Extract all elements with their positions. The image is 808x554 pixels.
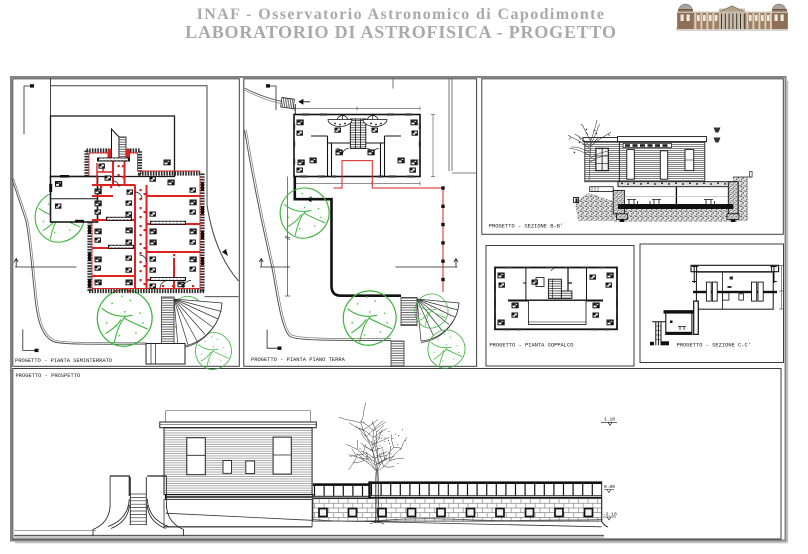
svg-text:PROGETTO - PIANTA SOPPALCO: PROGETTO - PIANTA SOPPALCO [489,343,573,349]
svg-text:LABORATORIO DI ASTROFISICA - P: LABORATORIO DI ASTROFISICA - PROGETTO [185,22,617,42]
svg-text:PROGETTO - SEZIONE B-B': PROGETTO - SEZIONE B-B' [489,224,563,230]
svg-text:0.00: 0.00 [604,484,615,490]
svg-text:PROGETTO - PROSPETTO: PROGETTO - PROSPETTO [16,373,81,379]
svg-text:INAF - Osservatorio Astronomic: INAF - Osservatorio Astronomico di Capod… [197,6,606,23]
svg-text:PROGETTO - PIANTA PIANO TERRA: PROGETTO - PIANTA PIANO TERRA [251,357,346,363]
svg-text:1.10: 1.10 [604,417,615,423]
svg-text:-2.10: -2.10 [603,512,617,518]
svg-text:PROGETTO - PIANTA SEMINTERRATO: PROGETTO - PIANTA SEMINTERRATO [15,358,112,364]
svg-text:PROGETTO - SEZIONE C-C': PROGETTO - SEZIONE C-C' [677,343,751,349]
